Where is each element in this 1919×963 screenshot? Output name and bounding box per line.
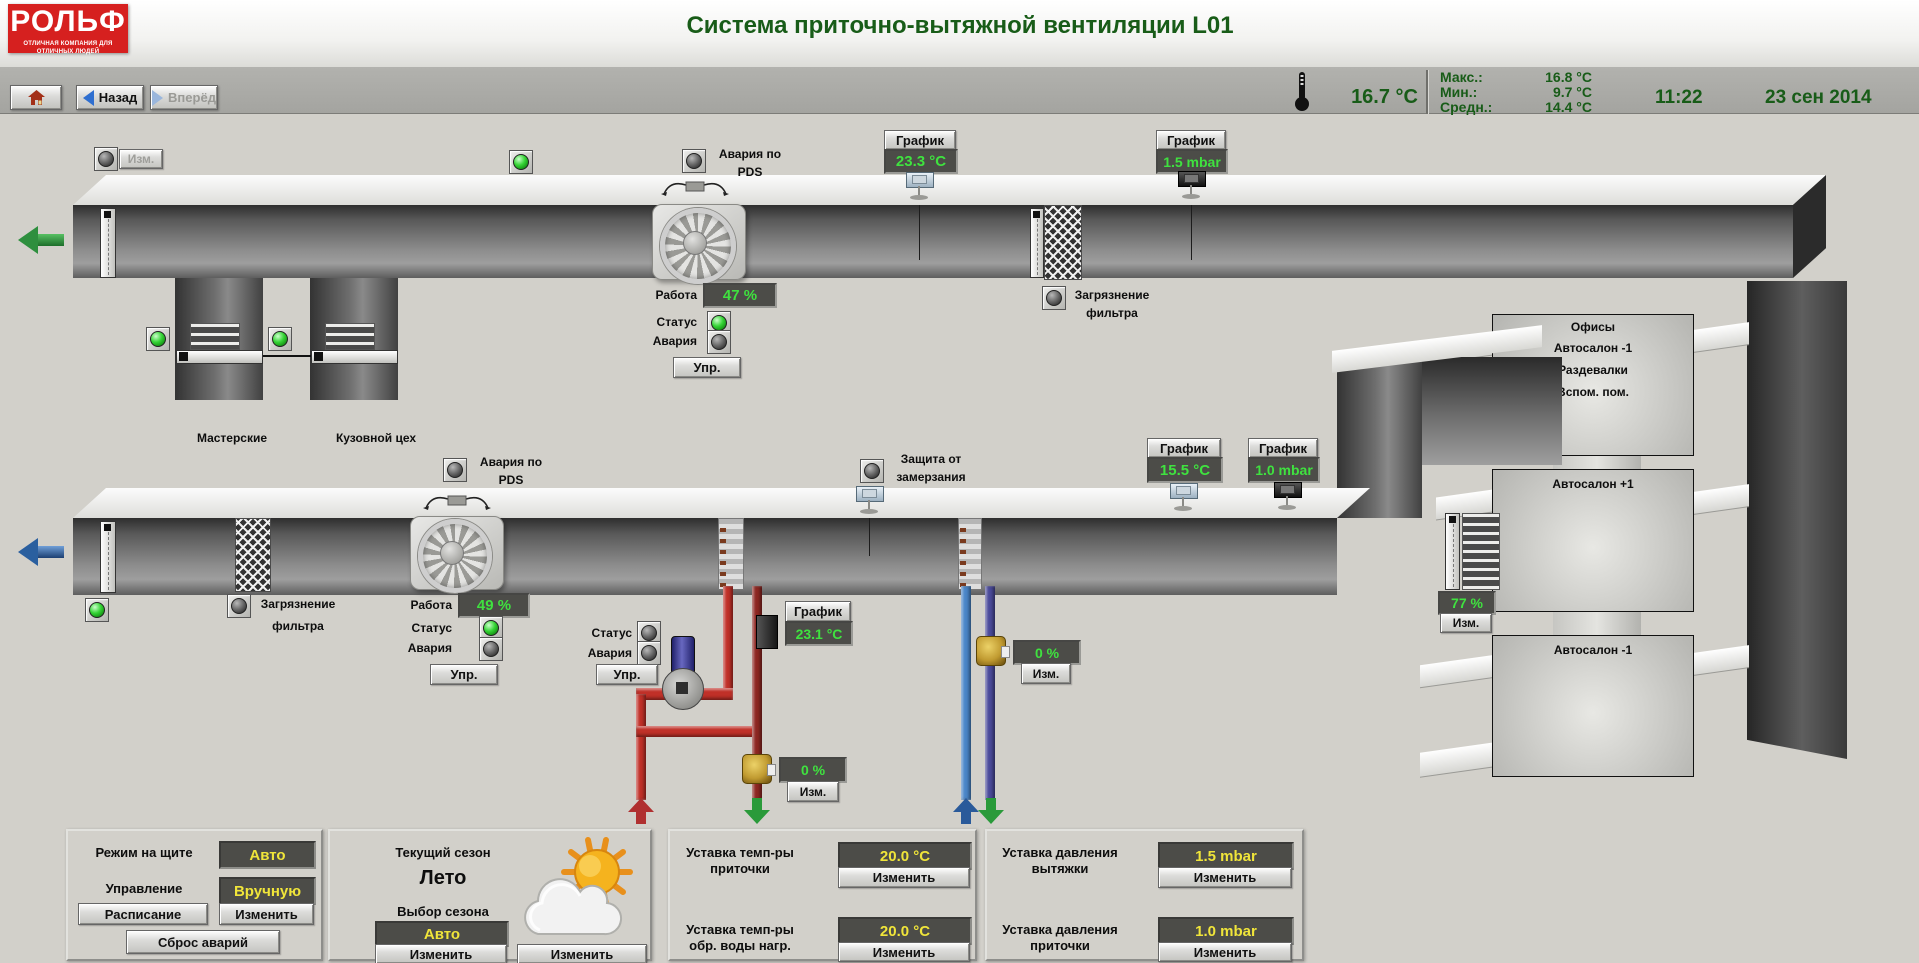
exhaust-pressure-probe bbox=[1191, 205, 1192, 260]
forward-button[interactable]: Вперёд bbox=[150, 85, 218, 110]
pressure-sp1-value: 1.5 mbar bbox=[1158, 842, 1294, 870]
supply-pds-label-2: PDS bbox=[473, 473, 549, 487]
exhaust-filter bbox=[1044, 205, 1082, 280]
pds-alarm-label: Авария по bbox=[712, 147, 788, 161]
min-temp-label: Мин.: bbox=[1440, 84, 1510, 100]
exhaust-fan-run-label: Работа bbox=[645, 288, 697, 302]
rooms-damper-position: 77 % bbox=[1438, 591, 1496, 615]
cold-pipe bbox=[961, 586, 971, 800]
home-icon bbox=[28, 90, 45, 105]
forward-label: Вперёд bbox=[168, 90, 216, 105]
cooler-valve-position: 0 % bbox=[1013, 640, 1081, 665]
thermometer-icon bbox=[1291, 70, 1313, 112]
supply-fan-speed: 49 % bbox=[458, 593, 530, 618]
supply-temp-sensor-icon bbox=[1170, 483, 1196, 513]
supply-temp-chart-button[interactable]: График bbox=[1147, 438, 1221, 458]
exhaust-status-led bbox=[509, 150, 533, 174]
pressure-sp2-change-button[interactable]: Изменить bbox=[1158, 942, 1292, 962]
season-select-change-button[interactable]: Изменить bbox=[375, 944, 507, 963]
temp-sp1-change-button[interactable]: Изменить bbox=[838, 867, 970, 888]
exhaust-filter-damper bbox=[1030, 208, 1044, 278]
supply-fan-status-label: Статус bbox=[400, 621, 452, 635]
damper-link-rod bbox=[262, 355, 312, 357]
branch-1-label: Мастерские bbox=[168, 431, 296, 445]
rooms-damper-change-button[interactable]: Изм. bbox=[1440, 613, 1492, 633]
exhaust-fan-hub bbox=[683, 231, 707, 255]
supply-pds-sensor-icon bbox=[422, 490, 492, 512]
control-value: Вручную bbox=[219, 877, 316, 905]
season-sun-cloud-icon bbox=[516, 834, 642, 946]
exhaust-pds-alarm-led bbox=[682, 149, 706, 173]
pump-alarm-led bbox=[637, 641, 661, 665]
room-zone-box-3: Автосалон -1 bbox=[1492, 635, 1694, 777]
season-current: Лето bbox=[388, 866, 498, 890]
supply-pressure-value: 1.0 mbar bbox=[1248, 457, 1320, 483]
exhaust-filter-label: Загрязнение bbox=[1066, 288, 1158, 302]
room-label: Автосалон -1 bbox=[1493, 643, 1693, 657]
pump-alarm-label: Авария bbox=[586, 646, 632, 660]
page-title: Система приточно-вытяжной вентиляции L01 bbox=[520, 12, 1400, 42]
frost-sensor-probe bbox=[869, 518, 870, 556]
pds-sensor-icon bbox=[660, 176, 730, 198]
back-button[interactable]: Назад bbox=[76, 85, 144, 110]
home-button[interactable] bbox=[10, 85, 62, 110]
return-water-temp-sensor bbox=[756, 615, 778, 649]
exhaust-damper-led bbox=[94, 147, 118, 171]
avg-temp-value: 14.4 °C bbox=[1512, 99, 1592, 115]
company-logo: РОЛЬФ ОТЛИЧНАЯ КОМПАНИЯ ДЛЯ ОТЛИЧНЫХ ЛЮД… bbox=[8, 4, 128, 53]
supply-corner-duct bbox=[1422, 357, 1562, 465]
exhaust-pressure-sensor-icon bbox=[1178, 171, 1204, 201]
exhaust-collector-duct bbox=[1747, 281, 1847, 759]
heater-valve-position: 0 % bbox=[779, 757, 847, 783]
temp-sp2-label: Уставка темп-ры bbox=[680, 922, 800, 938]
supply-filter bbox=[235, 518, 271, 592]
temp-sp1-label-2: приточки bbox=[680, 861, 800, 877]
exhaust-pressure-chart-button[interactable]: График bbox=[1156, 130, 1226, 150]
control-label: Управление bbox=[86, 881, 202, 897]
temp-sp2-value: 20.0 °C bbox=[838, 917, 972, 945]
branch-2-damper bbox=[311, 350, 398, 364]
toolbar bbox=[0, 67, 1919, 114]
exhaust-temp-sensor-icon bbox=[906, 172, 932, 202]
exhaust-fan-alarm-led bbox=[707, 330, 731, 354]
supply-inlet-damper bbox=[100, 521, 116, 593]
temp-sp1-label: Уставка темп-ры bbox=[680, 845, 800, 861]
frost-protection-label: Защита от bbox=[888, 452, 974, 466]
frost-protection-led bbox=[860, 459, 884, 483]
temp-sp1-value: 20.0 °C bbox=[838, 842, 972, 870]
scada-screen: РОЛЬФ ОТЛИЧНАЯ КОМПАНИЯ ДЛЯ ОТЛИЧНЫХ ЛЮД… bbox=[0, 0, 1919, 963]
heater-valve bbox=[742, 754, 772, 784]
supply-pds-alarm-led bbox=[443, 458, 467, 482]
pressure-sp2-label-2: приточки bbox=[998, 938, 1122, 954]
schedule-button[interactable]: Расписание bbox=[78, 903, 208, 925]
temp-sp2-label-2: обр. воды нагр. bbox=[680, 938, 800, 954]
toolbar-divider bbox=[1426, 70, 1429, 114]
branch-2-label: Кузовной цех bbox=[312, 431, 440, 445]
pressure-sp2-label: Уставка давления bbox=[998, 922, 1122, 938]
cooler-valve-change-button[interactable]: Изм. bbox=[1021, 663, 1071, 684]
rooms-damper-louver bbox=[1462, 513, 1500, 590]
exhaust-temp-chart-button[interactable]: График bbox=[884, 130, 956, 150]
room-zone-box-2: Автосалон +1 bbox=[1492, 469, 1694, 612]
heater-pump-window bbox=[676, 682, 688, 694]
back-arrow-icon bbox=[83, 90, 94, 106]
season-title: Текущий сезон bbox=[388, 845, 498, 861]
supply-filter-label: Загрязнение bbox=[252, 597, 344, 611]
pump-control-button[interactable]: Упр. bbox=[596, 664, 658, 685]
supply-filter-dirty-led bbox=[227, 594, 251, 618]
control-change-button[interactable]: Изменить bbox=[219, 903, 314, 925]
pressure-sp2-value: 1.0 mbar bbox=[1158, 917, 1294, 945]
exhaust-damper-change-button[interactable]: Изм. bbox=[119, 149, 163, 169]
pressure-sp1-label-2: вытяжки bbox=[998, 861, 1122, 877]
return-water-temp-value: 23.1 °C bbox=[785, 621, 853, 646]
exhaust-temp-probe bbox=[919, 205, 920, 260]
heater-coil bbox=[718, 518, 744, 590]
mode-value: Авто bbox=[219, 841, 316, 869]
branch-2-damper-led bbox=[268, 327, 292, 351]
max-temp-label: Макс.: bbox=[1440, 69, 1510, 85]
frost-protection-label-2: замерзания bbox=[888, 470, 974, 484]
pump-status-label: Статус bbox=[586, 626, 632, 640]
branch-2-grille bbox=[325, 323, 375, 350]
supply-inlet-led bbox=[85, 598, 109, 622]
supply-filter-label-2: фильтра bbox=[252, 619, 344, 633]
exhaust-duct bbox=[73, 205, 1793, 278]
supply-temp-value: 15.5 °C bbox=[1147, 457, 1223, 483]
outdoor-temp-value: 16.7 °C bbox=[1322, 86, 1418, 109]
back-label: Назад bbox=[99, 90, 138, 105]
supply-fan-hub bbox=[440, 541, 464, 565]
max-temp-value: 16.8 °C bbox=[1512, 69, 1592, 85]
exhaust-inlet-damper bbox=[100, 208, 116, 278]
logo-text: РОЛЬФ bbox=[8, 4, 128, 40]
supply-fan-run-label: Работа bbox=[400, 598, 452, 612]
exhaust-fan-control-button[interactable]: Упр. bbox=[673, 357, 741, 378]
cooler-coil bbox=[958, 518, 982, 590]
supply-pressure-chart-button[interactable]: График bbox=[1248, 438, 1318, 458]
avg-temp-label: Средн.: bbox=[1440, 99, 1510, 115]
temp-sp2-change-button[interactable]: Изменить bbox=[838, 942, 970, 962]
room-label: Автосалон +1 bbox=[1493, 477, 1693, 491]
cooler-valve bbox=[976, 636, 1006, 666]
supply-pressure-sensor-icon bbox=[1274, 482, 1300, 512]
exhaust-fan-alarm-label: Авария bbox=[645, 334, 697, 348]
hot-pipe bbox=[636, 726, 762, 737]
clock: 11:22 bbox=[1655, 87, 1735, 109]
rooms-damper bbox=[1445, 513, 1460, 590]
supply-fan-alarm-led bbox=[479, 637, 503, 661]
heater-valve-change-button[interactable]: Изм. bbox=[787, 781, 839, 802]
exhaust-fan-status-label: Статус bbox=[645, 315, 697, 329]
frost-sensor-icon bbox=[856, 486, 882, 516]
branch-1-damper-led bbox=[146, 327, 170, 351]
season-change-button[interactable]: Изменить bbox=[517, 944, 647, 963]
date: 23 сен 2014 bbox=[1765, 87, 1910, 109]
pressure-sp1-label: Уставка давления bbox=[998, 845, 1122, 861]
supply-fan-alarm-label: Авария bbox=[400, 641, 452, 655]
hot-pipe bbox=[723, 586, 733, 700]
forward-arrow-icon bbox=[152, 90, 163, 106]
supply-pds-label: Авария по bbox=[473, 455, 549, 469]
hot-pipe bbox=[636, 694, 646, 800]
return-water-chart-button[interactable]: График bbox=[785, 601, 851, 622]
exhaust-filter-dirty-led bbox=[1042, 286, 1066, 310]
branch-1-grille bbox=[190, 323, 240, 350]
exhaust-temp-value: 23.3 °C bbox=[884, 149, 958, 174]
pressure-sp1-change-button[interactable]: Изменить bbox=[1158, 867, 1292, 888]
branch-1-damper bbox=[176, 350, 263, 364]
exhaust-duct-top bbox=[73, 175, 1826, 205]
alarm-reset-button[interactable]: Сброс аварий bbox=[126, 930, 280, 954]
cold-return-pipe bbox=[985, 586, 995, 800]
exhaust-fan-speed: 47 % bbox=[703, 283, 777, 308]
mode-title: Режим на щите bbox=[78, 845, 210, 861]
season-select-label: Выбор сезона bbox=[388, 904, 498, 920]
supply-fan-control-button[interactable]: Упр. bbox=[430, 664, 498, 685]
logo-slogan: ОТЛИЧНАЯ КОМПАНИЯ ДЛЯ ОТЛИЧНЫХ ЛЮДЕЙ bbox=[8, 40, 128, 56]
min-temp-value: 9.7 °C bbox=[1512, 84, 1592, 100]
exhaust-filter-label-2: фильтра bbox=[1066, 306, 1158, 320]
